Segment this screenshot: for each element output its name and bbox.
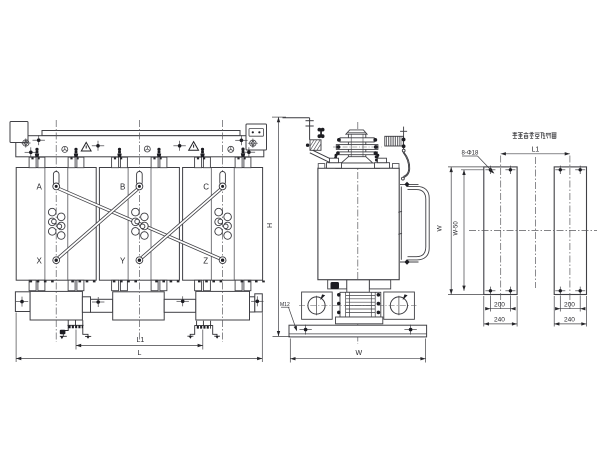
svg-text:240: 240 [494,317,505,324]
svg-text:L1: L1 [532,147,540,154]
svg-text:A: A [37,183,43,192]
svg-text:L: L [138,350,142,357]
svg-text:L1: L1 [137,337,145,344]
svg-text:200: 200 [564,301,575,308]
svg-text:X: X [37,256,43,265]
svg-text:W: W [356,350,363,357]
svg-text:C: C [203,183,209,192]
svg-text:W: W [437,225,444,232]
svg-text:240: 240 [564,317,575,324]
svg-text:200: 200 [494,301,505,308]
svg-text:B: B [120,183,125,192]
svg-text:H: H [267,223,274,228]
svg-text:Y: Y [120,256,126,265]
svg-text:W-50: W-50 [454,221,460,236]
svg-text:Z: Z [203,256,208,265]
